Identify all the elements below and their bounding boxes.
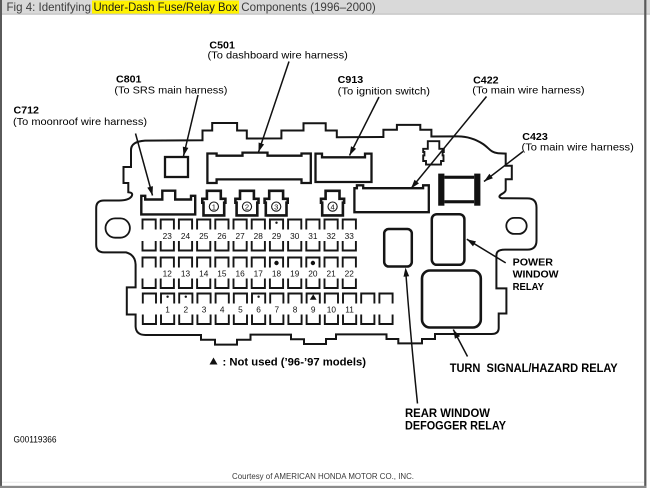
svg-text:2: 2: [183, 305, 188, 315]
svg-text:23: 23: [163, 231, 173, 241]
svg-text:1: 1: [212, 202, 216, 211]
svg-text:19: 19: [290, 269, 300, 279]
svg-text:10: 10: [327, 305, 337, 315]
svg-text:11: 11: [345, 305, 354, 315]
svg-text:16: 16: [235, 269, 245, 279]
svg-text:1: 1: [165, 305, 170, 315]
svg-text:REAR WINDOW: REAR WINDOW: [405, 408, 490, 420]
svg-text:15: 15: [217, 269, 227, 279]
svg-text:G00119366: G00119366: [14, 434, 57, 445]
svg-text:WINDOW: WINDOW: [513, 270, 560, 281]
svg-text:4: 4: [330, 202, 334, 211]
svg-text:31: 31: [308, 231, 318, 241]
svg-text:13: 13: [181, 269, 191, 279]
svg-text:TURN SIGNAL/HAZARD RELAY: TURN SIGNAL/HAZARD RELAY: [450, 363, 618, 375]
svg-text:8: 8: [293, 305, 298, 315]
svg-text:(To dashboard wire harness): (To dashboard wire harness): [208, 50, 348, 62]
svg-text:C913: C913: [338, 74, 364, 86]
svg-text:12: 12: [163, 269, 173, 279]
svg-text:6: 6: [256, 305, 261, 315]
svg-text:2: 2: [245, 202, 249, 211]
svg-text:29: 29: [272, 231, 282, 241]
svg-text:(To main wire harness): (To main wire harness): [522, 141, 634, 153]
svg-text:4: 4: [220, 305, 225, 315]
svg-text:25: 25: [199, 231, 209, 241]
svg-text:Components (1996–2000): Components (1996–2000): [241, 0, 375, 14]
svg-text:32: 32: [326, 231, 336, 241]
svg-text:21: 21: [326, 269, 336, 279]
svg-text:: Not used (’96-’97 models): : Not used (’96-’97 models): [223, 356, 367, 368]
svg-text:9: 9: [311, 305, 316, 315]
svg-text:5: 5: [238, 305, 243, 315]
svg-text:17: 17: [254, 269, 264, 279]
svg-text:DEFOGGER RELAY: DEFOGGER RELAY: [405, 421, 506, 433]
svg-text:30: 30: [290, 231, 300, 241]
svg-text:POWER: POWER: [513, 257, 554, 268]
svg-text:(To ignition switch): (To ignition switch): [338, 86, 430, 98]
svg-text:3: 3: [202, 305, 207, 315]
svg-text:24: 24: [181, 231, 191, 241]
svg-text:14: 14: [199, 269, 209, 279]
svg-text:22: 22: [345, 269, 355, 279]
svg-text:C801: C801: [116, 73, 142, 85]
svg-text:(To main wire harness): (To main wire harness): [472, 85, 584, 97]
svg-text:18: 18: [272, 269, 282, 279]
svg-text:33: 33: [345, 231, 355, 241]
svg-text:RELAY: RELAY: [513, 282, 545, 293]
svg-text:7: 7: [274, 305, 279, 315]
svg-text:(To SRS main harness): (To SRS main harness): [114, 85, 227, 97]
svg-text:Courtesy of AMERICAN HONDA MOT: Courtesy of AMERICAN HONDA MOTOR CO., IN…: [232, 471, 414, 481]
svg-text:27: 27: [235, 231, 245, 241]
svg-text:3: 3: [274, 202, 278, 211]
svg-text:(To moonroof wire harness): (To moonroof wire harness): [13, 116, 147, 128]
svg-text:20: 20: [308, 269, 318, 279]
svg-text:Under-Dash Fuse/Relay Box: Under-Dash Fuse/Relay Box: [94, 0, 238, 14]
svg-text:26: 26: [217, 231, 227, 241]
svg-text:Fig 4: Identifying: Fig 4: Identifying: [7, 0, 92, 14]
svg-text:C712: C712: [14, 105, 40, 117]
svg-text:28: 28: [254, 231, 264, 241]
